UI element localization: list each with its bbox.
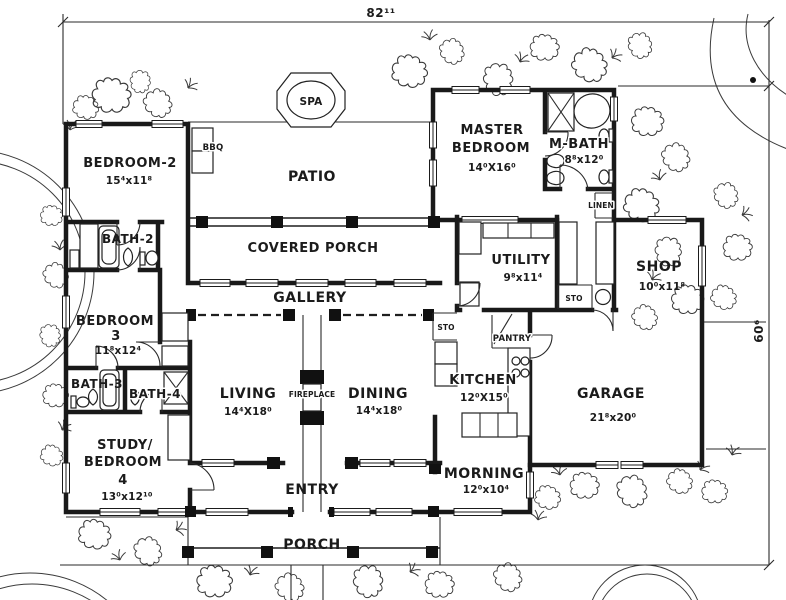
room-label-morning: MORNING [444,466,524,482]
room-label-fireplace: FIREPLACE [289,390,335,399]
kitchen-island [462,413,517,437]
survey-point [750,77,756,83]
room-label-sto-kitchen: STO [437,323,454,332]
tree-bottom-center [588,565,702,600]
room-size-garage: 21⁸x20⁰ [590,412,637,424]
room-label-porch: PORCH [283,537,340,553]
room-label-study-line2: BEDROOM [84,455,162,470]
room-label-bedroom3-line1: BEDROOM [76,314,154,329]
grass-tufts [51,28,756,579]
room-size-dining: 14⁴x18⁰ [356,405,403,417]
floor-plan-page: 82¹¹ 60⁶ BEDROOM-2 15⁴x11⁸ BATH-2 BEDROO… [0,0,786,600]
room-label-study-line3: 4 [118,473,128,488]
room-size-utility: 9⁸x11⁴ [503,272,542,284]
room-label-bbq: BBQ [203,143,224,153]
floor-plan-canvas: 82¹¹ 60⁶ BEDROOM-2 15⁴x11⁸ BATH-2 BEDROO… [0,0,786,600]
dimension-width-label: 82¹¹ [366,6,395,20]
dimension-height-label: 60⁶ [752,319,766,342]
room-label-patio: PATIO [288,169,336,185]
room-label-study-line1: STUDY/ [97,438,153,453]
room-label-dining: DINING [348,386,408,402]
room-size-shop: 10⁰x11⁸ [639,281,686,293]
room-label-master-line2: BEDROOM [452,141,530,156]
room-label-bedroom2: BEDROOM-2 [83,156,177,171]
room-size-master: 14⁰X16⁰ [468,162,516,174]
room-label-entry: ENTRY [285,482,339,498]
room-label-living: LIVING [220,386,276,402]
room-label-pantry: PANTRY [493,334,532,344]
room-label-bedroom3-line2: 3 [111,329,121,344]
room-size-kitchen: 12⁰X15⁰ [460,392,508,404]
room-label-gallery: GALLERY [273,290,347,306]
room-label-sto-hall: STO [565,294,582,303]
outdoor-slabs [66,122,440,600]
room-label-bath3: BATH-3 [71,377,123,391]
room-label-shop: SHOP [636,259,682,275]
room-label-bath2: BATH-2 [102,232,154,246]
water-heater [596,290,611,305]
room-size-bedroom2: 15⁴x11⁸ [106,175,153,187]
room-size-study: 13⁰x12¹⁰ [101,491,153,503]
room-label-spa: SPA [299,96,323,108]
room-label-bath4: BATH-4 [129,387,181,401]
room-label-garage: GARAGE [577,386,645,402]
room-size-bedroom3: 11⁸x12⁴ [95,345,142,357]
room-label-mbath: M-BATH [549,137,609,152]
room-label-utility: UTILITY [491,253,550,268]
room-size-living: 14⁴X18⁰ [224,406,272,418]
room-label-kitchen: KITCHEN [449,373,516,388]
room-label-covered-porch: COVERED PORCH [248,241,379,256]
room-size-morning: 12⁰x10⁴ [463,484,510,496]
tree-bottom-left [0,573,152,600]
tree-top-right [710,14,786,150]
room-label-linen: LINEN [588,201,614,210]
room-size-mbath: 8⁸x12⁰ [564,154,603,166]
room-label-master-line1: MASTER [460,123,523,138]
